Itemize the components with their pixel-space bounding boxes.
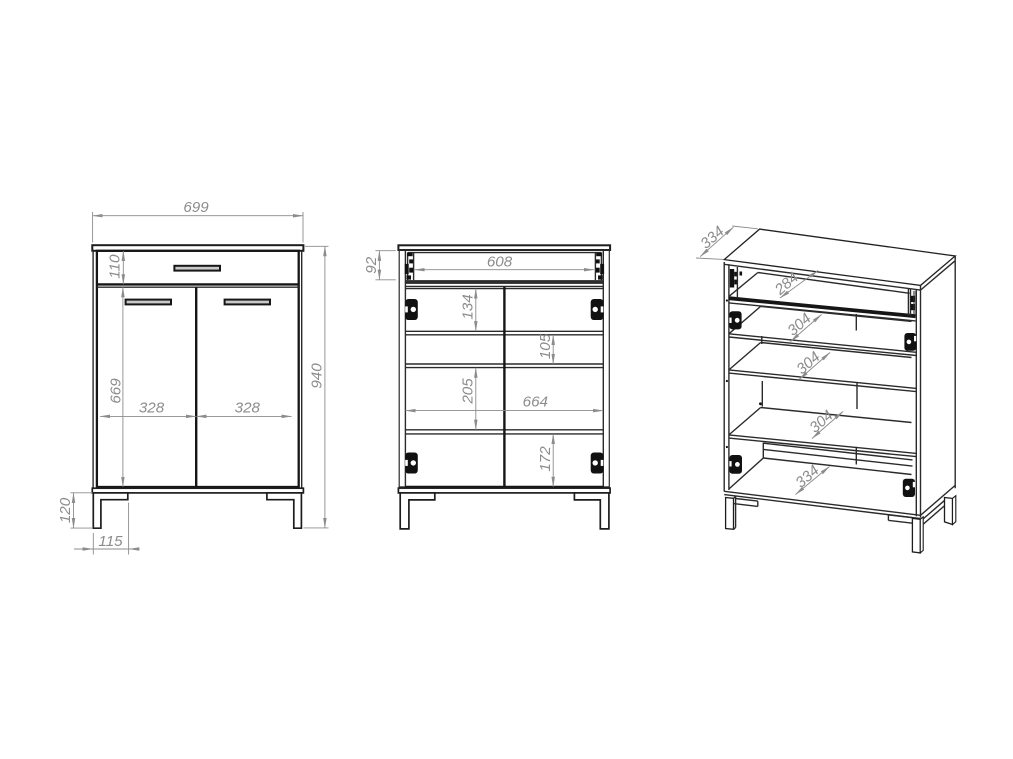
svg-text:328: 328 — [139, 399, 165, 416]
svg-text:172: 172 — [537, 446, 554, 472]
svg-text:92: 92 — [363, 256, 380, 273]
svg-text:328: 328 — [235, 399, 261, 416]
svg-text:115: 115 — [98, 533, 123, 550]
svg-text:120: 120 — [57, 497, 74, 523]
svg-text:205: 205 — [459, 378, 476, 405]
svg-text:608: 608 — [487, 253, 513, 270]
svg-text:134: 134 — [459, 294, 476, 319]
svg-text:110: 110 — [107, 254, 124, 279]
svg-text:105: 105 — [537, 333, 554, 359]
svg-text:669: 669 — [107, 378, 124, 404]
svg-text:664: 664 — [523, 394, 548, 411]
svg-text:940: 940 — [309, 363, 326, 389]
svg-text:699: 699 — [183, 199, 209, 216]
